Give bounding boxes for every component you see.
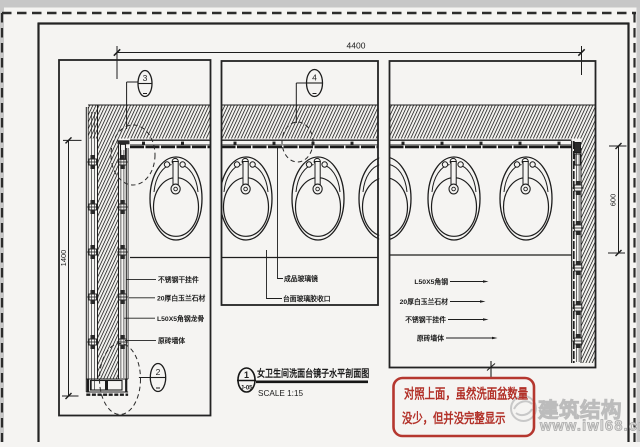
svg-text:没少，但并没完整显示: 没少，但并没完整显示	[402, 409, 505, 426]
svg-text:3: 3	[143, 73, 148, 83]
svg-text:不锈钢干挂件: 不锈钢干挂件	[158, 275, 199, 284]
svg-text:4400: 4400	[347, 41, 366, 51]
svg-text:20厚白玉兰石材: 20厚白玉兰石材	[400, 297, 449, 306]
svg-text:www.iwl68.cn: www.iwl68.cn	[539, 419, 640, 435]
svg-text:原砖墙体: 原砖墙体	[158, 336, 185, 345]
svg-text:成品玻璃镜: 成品玻璃镜	[284, 274, 318, 283]
svg-text:20厚白玉兰石材: 20厚白玉兰石材	[157, 294, 206, 303]
svg-text:1400: 1400	[59, 250, 68, 267]
svg-text:600: 600	[609, 194, 618, 207]
svg-text:1: 1	[244, 370, 249, 380]
svg-text:不锈钢干挂件: 不锈钢干挂件	[405, 315, 446, 324]
svg-text:2: 2	[156, 367, 161, 377]
svg-text:L50X5角钢龙骨: L50X5角钢龙骨	[157, 314, 204, 323]
svg-text:台面玻璃胶收口: 台面玻璃胶收口	[283, 294, 331, 303]
svg-text:4: 4	[312, 73, 317, 83]
svg-text:SCALE 1:15: SCALE 1:15	[258, 389, 304, 398]
svg-text:女卫生间洗面台镜子水平剖面图: 女卫生间洗面台镜子水平剖面图	[257, 367, 369, 379]
svg-text:原砖墙体: 原砖墙体	[417, 334, 444, 343]
svg-text:对照上面，虽然洗面盆数量: 对照上面，虽然洗面盆数量	[404, 385, 528, 402]
svg-text:L50X5角钢: L50X5角钢	[414, 277, 448, 286]
svg-text:J-05: J-05	[240, 386, 253, 392]
